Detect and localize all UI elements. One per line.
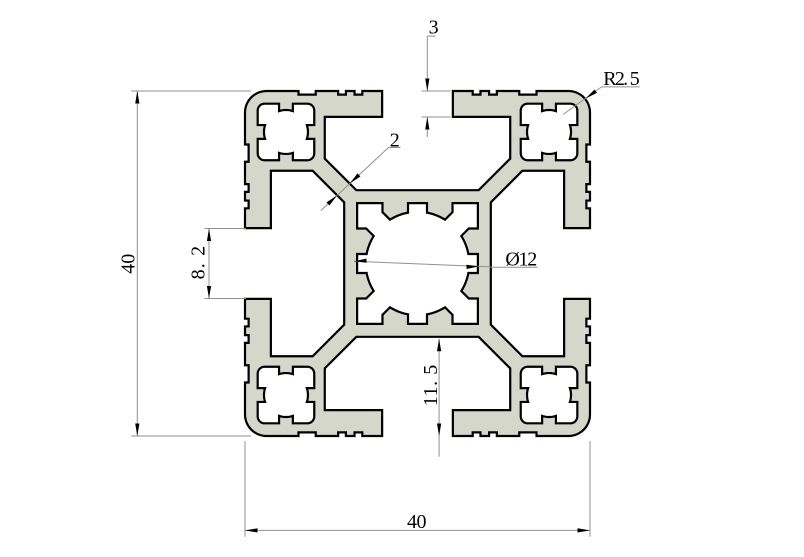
svg-text:40: 40	[407, 511, 427, 533]
svg-text:40: 40	[117, 254, 139, 274]
svg-text:Ø12: Ø12	[505, 249, 537, 271]
svg-text:2: 2	[390, 130, 400, 152]
svg-text:3: 3	[429, 17, 439, 39]
svg-text:R2. 5: R2. 5	[603, 68, 640, 90]
svg-text:11. 5: 11. 5	[420, 365, 442, 407]
svg-text:8. 2: 8. 2	[187, 246, 209, 280]
